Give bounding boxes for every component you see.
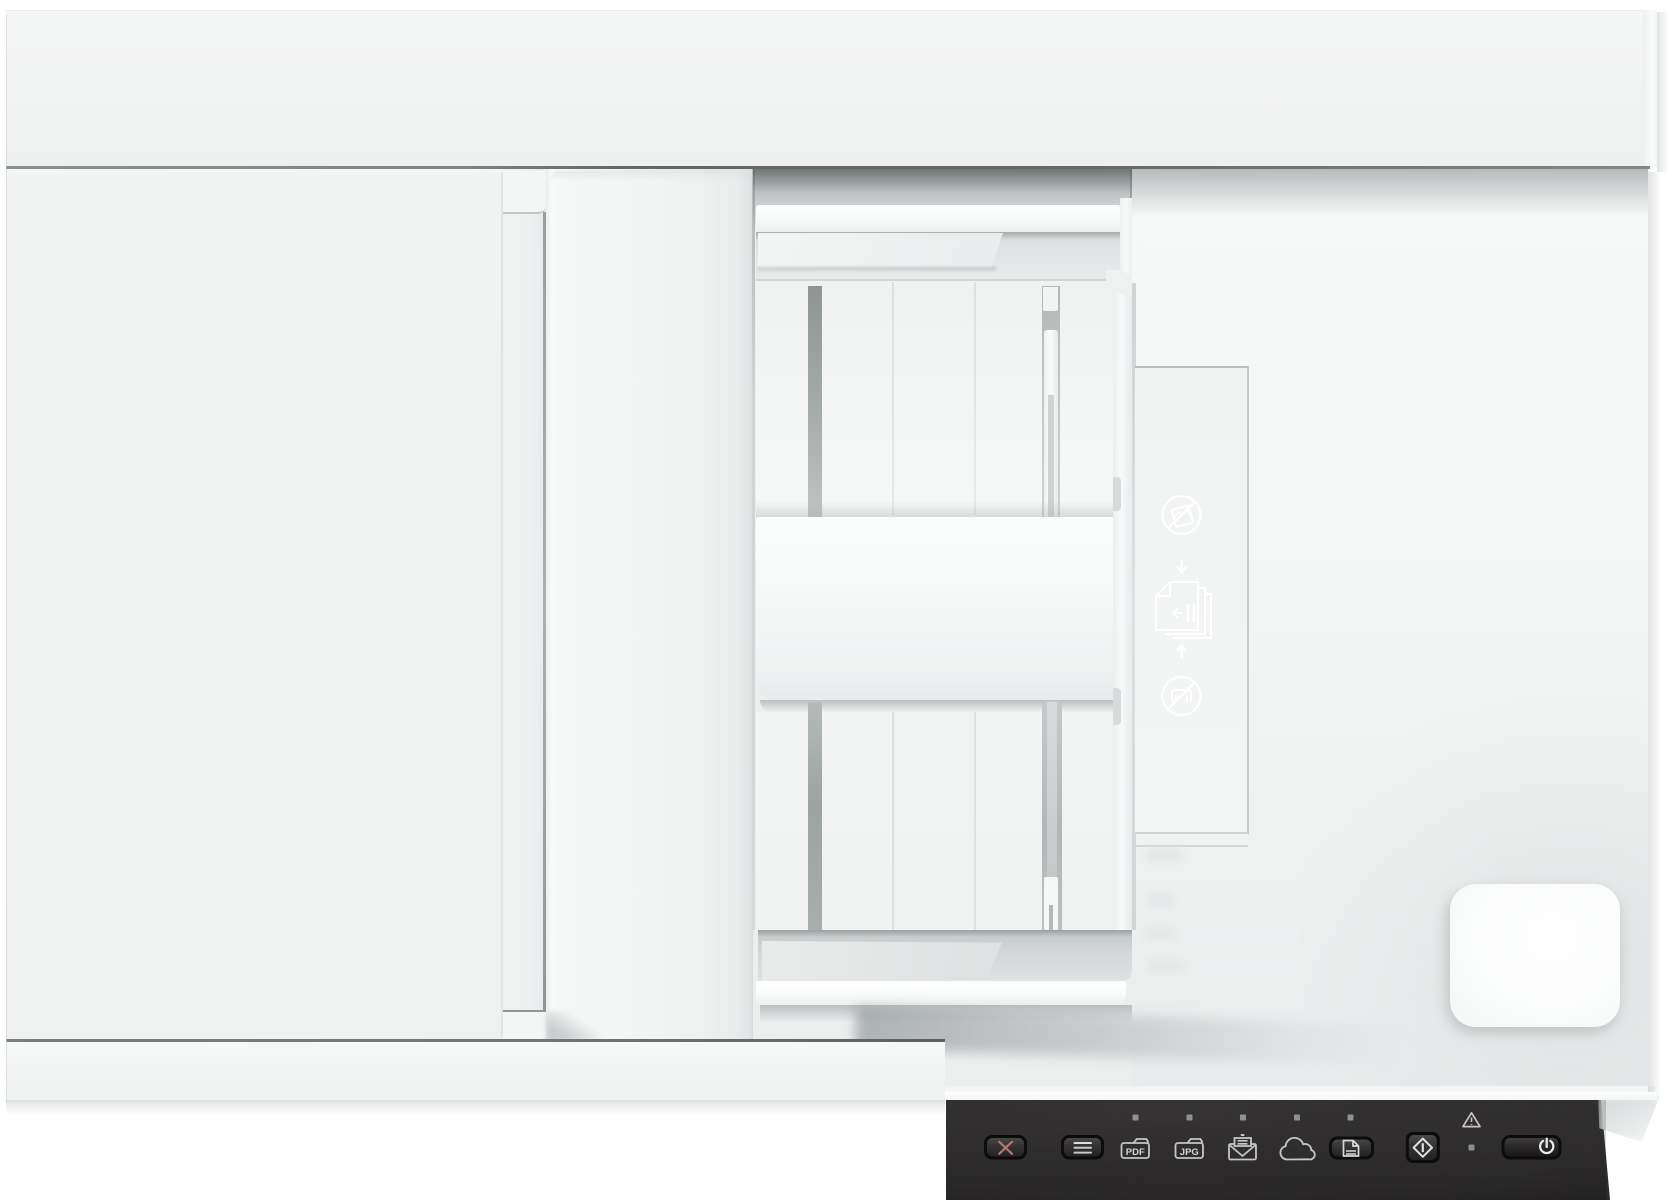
svg-text:PDF: PDF xyxy=(1126,1147,1145,1158)
svg-text:JPG: JPG xyxy=(1180,1147,1199,1158)
